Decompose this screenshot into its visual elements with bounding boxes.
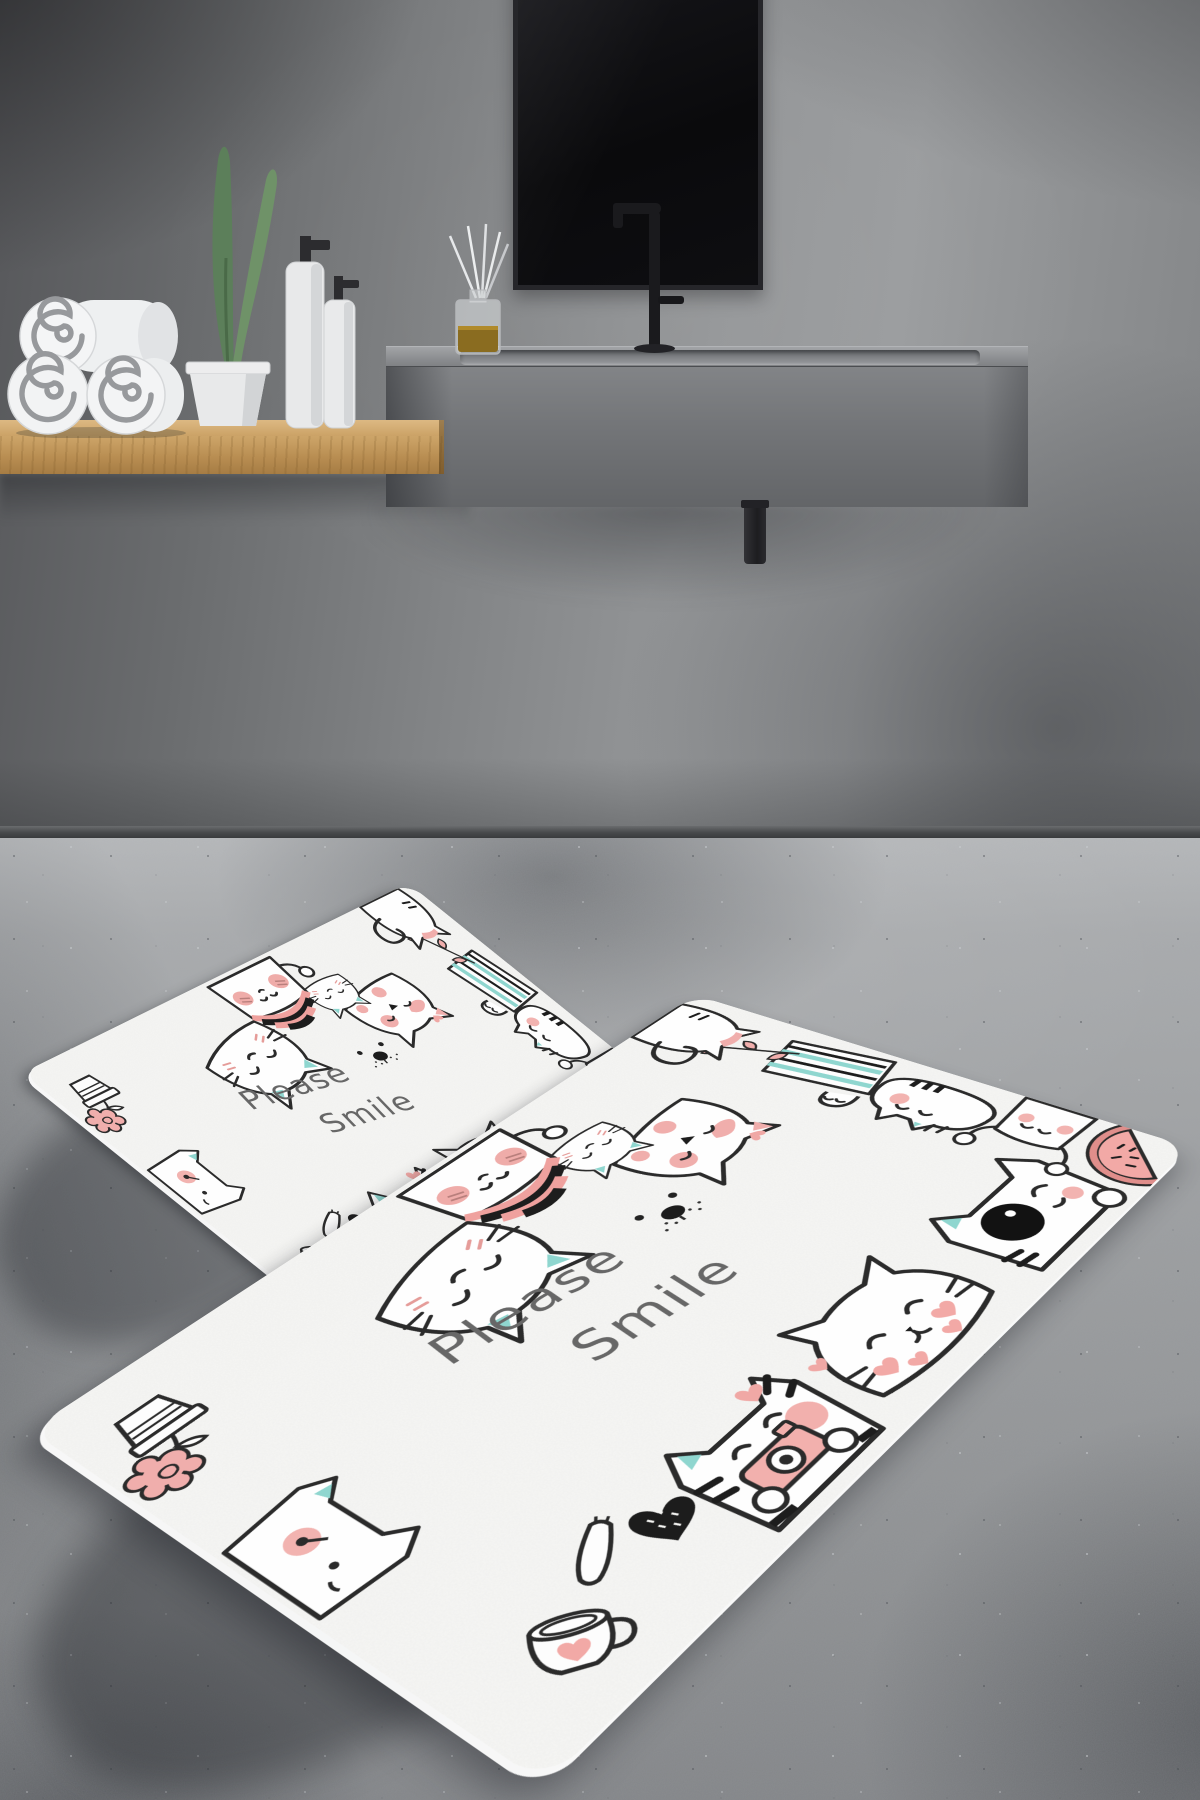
plant-leaf [212,147,234,370]
shelf-end-edge [439,420,444,474]
vanity-shadow [370,500,1090,640]
rolled-towels [6,286,188,438]
faucet-spout-tip [613,203,623,228]
mirror [513,0,763,290]
soap-dispensers [278,226,382,432]
drain-pipe [744,500,766,564]
shelf-front-face [0,436,444,474]
baseboard [0,826,1200,838]
faucet-stem [649,212,660,352]
faucet-base [634,344,675,353]
scene: Please Smile [0,0,1200,1800]
faucet-handle [658,296,684,304]
potted-plant [168,118,288,430]
pump-nozzle [306,240,330,250]
sink-basin [460,350,980,365]
vanity-front [386,366,1028,507]
plant-leaf [232,169,277,370]
vanity-sink [386,346,1028,506]
reed-diffuser [442,218,514,358]
